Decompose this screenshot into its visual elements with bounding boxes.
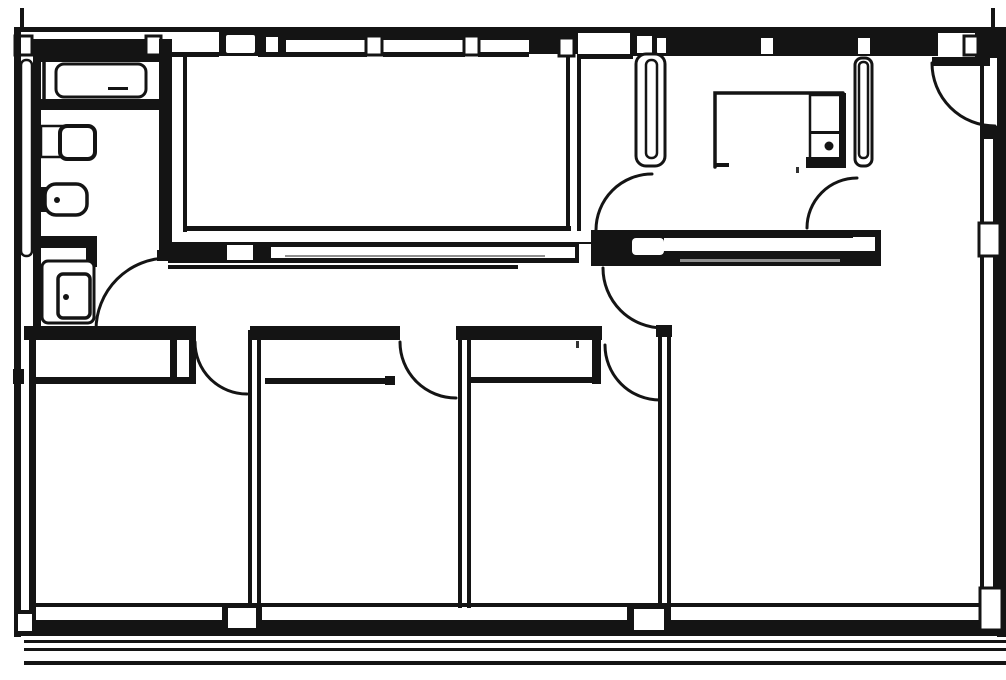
terrace-line-3 bbox=[24, 661, 1006, 665]
top-inner-face-1 bbox=[166, 52, 219, 57]
bedroom3-door-post bbox=[592, 336, 601, 384]
bathroom-door-arc bbox=[96, 258, 168, 330]
terrace-line-2 bbox=[24, 648, 1006, 651]
sink-bowl bbox=[60, 126, 95, 159]
mullion-post-3 bbox=[366, 36, 382, 55]
bathtub-front-edge bbox=[41, 99, 168, 110]
hall-south-face-line bbox=[168, 265, 518, 269]
mullion-post-2 bbox=[146, 36, 161, 55]
terrace-line-1 bbox=[24, 640, 1006, 643]
wardrobe2-front-line bbox=[265, 378, 389, 384]
hall-wall-texture-2 bbox=[680, 259, 840, 262]
kitchen-appliance-knob bbox=[825, 142, 834, 151]
washer-inner bbox=[58, 274, 90, 318]
bottom-pier2-inner bbox=[634, 609, 664, 630]
room-divider3-line-a bbox=[658, 327, 662, 606]
entry-door-leaf bbox=[932, 57, 990, 66]
right-window2-line-a bbox=[980, 256, 984, 590]
hall-radiator-inner bbox=[646, 60, 657, 158]
bedroom2-north-wall bbox=[250, 326, 400, 340]
right-wall-block bbox=[980, 126, 999, 139]
room-divider2-line-a bbox=[458, 330, 462, 608]
toilet-bowl bbox=[45, 184, 87, 215]
right-foot-block bbox=[980, 588, 1002, 630]
left-foot-inner bbox=[18, 614, 32, 631]
radiator-junction-notch-2 bbox=[657, 38, 667, 53]
toilet-drain-dot bbox=[54, 197, 60, 203]
left-wall-radiator bbox=[21, 60, 32, 256]
top-wall-outer-thick-mid bbox=[280, 27, 530, 40]
entry-door-arc bbox=[932, 63, 995, 126]
top-opening-white bbox=[226, 35, 255, 53]
hall-wall-slot-2 bbox=[664, 238, 854, 251]
bedroom3-north-wall bbox=[456, 326, 602, 340]
kitchen-west-door-arc bbox=[596, 174, 652, 230]
scan-speck-1 bbox=[576, 341, 579, 348]
mullion-post-4 bbox=[464, 36, 479, 55]
left-wall-tick bbox=[13, 369, 24, 384]
kitchen-counter-tick bbox=[715, 163, 729, 167]
hall-door-arc bbox=[603, 268, 663, 328]
floor-plan-page bbox=[0, 0, 1006, 680]
hall-wall-opening-2 bbox=[632, 238, 664, 255]
room-divider3-line-b bbox=[667, 327, 671, 606]
window-notch-1 bbox=[761, 38, 773, 54]
right-wall-inner-top bbox=[980, 56, 984, 128]
room-divider1-line-a bbox=[248, 330, 252, 608]
hall-wall-gap bbox=[579, 244, 591, 263]
room-divider1-line-b bbox=[257, 330, 261, 608]
top-wall-outer-left bbox=[14, 27, 219, 32]
top-wall-tick-left bbox=[20, 8, 24, 28]
kitchen-radiator-inner bbox=[859, 62, 868, 158]
wardrobe2-end-cap bbox=[385, 376, 395, 385]
top-inner-face-4 bbox=[478, 52, 529, 57]
mullion-post-5 bbox=[559, 38, 574, 56]
room-divider2-line-b bbox=[467, 330, 471, 608]
bottom-wall-inner-line bbox=[33, 603, 1000, 607]
window-notch-2 bbox=[858, 38, 870, 54]
hall-wall-notch bbox=[853, 237, 875, 251]
kitchen-appliance-east-edge bbox=[839, 93, 846, 168]
livingroom-west-face bbox=[183, 55, 187, 232]
mullion-post-6 bbox=[964, 36, 978, 55]
top-wall-tick-right bbox=[991, 8, 995, 28]
washer-dot bbox=[63, 294, 69, 300]
hall-wall-opening-1 bbox=[227, 245, 253, 260]
right-wall-outer bbox=[997, 27, 1006, 637]
top-inner-face-3 bbox=[383, 52, 465, 57]
right-window1-line-a bbox=[980, 139, 984, 225]
radiator-junction-notch-1 bbox=[637, 36, 652, 53]
closet-top-band bbox=[24, 326, 196, 340]
scan-speck-2 bbox=[796, 167, 799, 173]
hall-wall-texture-1 bbox=[285, 255, 545, 257]
livingroom-east-face-b bbox=[577, 55, 581, 231]
bottom-wall-thick-band bbox=[14, 620, 1006, 636]
bathtub-drain-mark bbox=[108, 87, 128, 90]
wardrobe3-front-line bbox=[468, 377, 594, 383]
bedroom2-door-arc bbox=[400, 342, 456, 398]
top-step-post bbox=[266, 37, 278, 52]
top-wall-band-right bbox=[666, 30, 938, 56]
closet-end-cap-a bbox=[170, 338, 177, 380]
bathroom-top-wall-band bbox=[33, 39, 162, 62]
livingroom-south-face bbox=[185, 226, 571, 231]
kitchen-appliance-divider bbox=[810, 131, 843, 134]
bedroom3-door-arc bbox=[605, 345, 660, 400]
bathtub-basin bbox=[56, 64, 146, 97]
kitchen-appliance-box bbox=[810, 95, 843, 161]
right-wall-pier bbox=[979, 223, 1000, 256]
left-wall-inner-lower bbox=[29, 332, 36, 624]
right-window2-line-b bbox=[993, 256, 997, 590]
livingroom-east-face-a bbox=[566, 55, 570, 231]
kitchen-east-door-arc bbox=[807, 178, 857, 228]
top-inner-face-5 bbox=[577, 54, 633, 59]
bedroom1-door-arc bbox=[195, 342, 247, 394]
top-inner-face-2 bbox=[283, 52, 367, 57]
floor-plan-drawing bbox=[0, 0, 1006, 680]
right-window1-line-b bbox=[993, 139, 997, 225]
bottom-pier1-inner bbox=[228, 608, 256, 628]
